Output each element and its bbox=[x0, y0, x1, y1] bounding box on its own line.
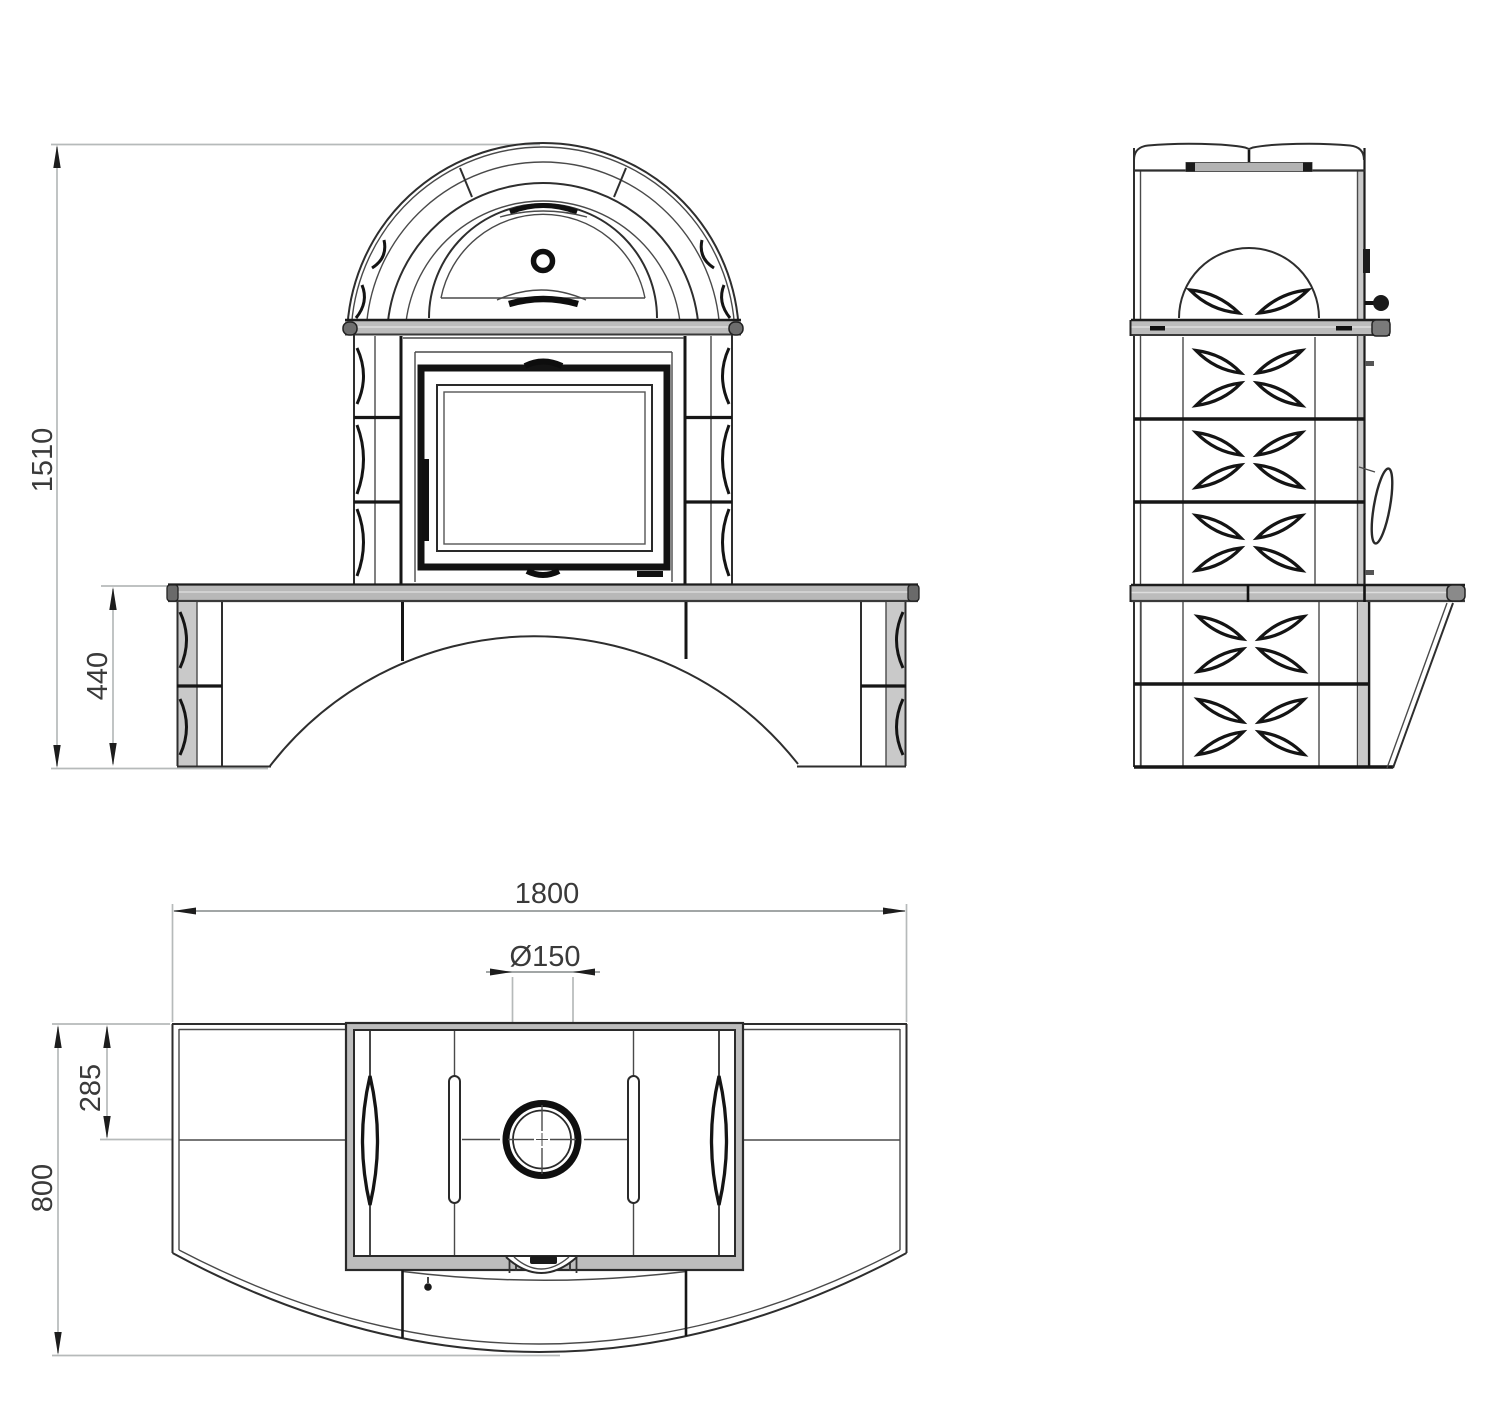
svg-text:1800: 1800 bbox=[515, 878, 580, 910]
svg-text:Ø150: Ø150 bbox=[510, 941, 581, 973]
svg-text:1510: 1510 bbox=[27, 428, 59, 493]
svg-text:800: 800 bbox=[27, 1164, 59, 1212]
svg-text:440: 440 bbox=[82, 652, 114, 700]
svg-text:285: 285 bbox=[75, 1064, 107, 1112]
